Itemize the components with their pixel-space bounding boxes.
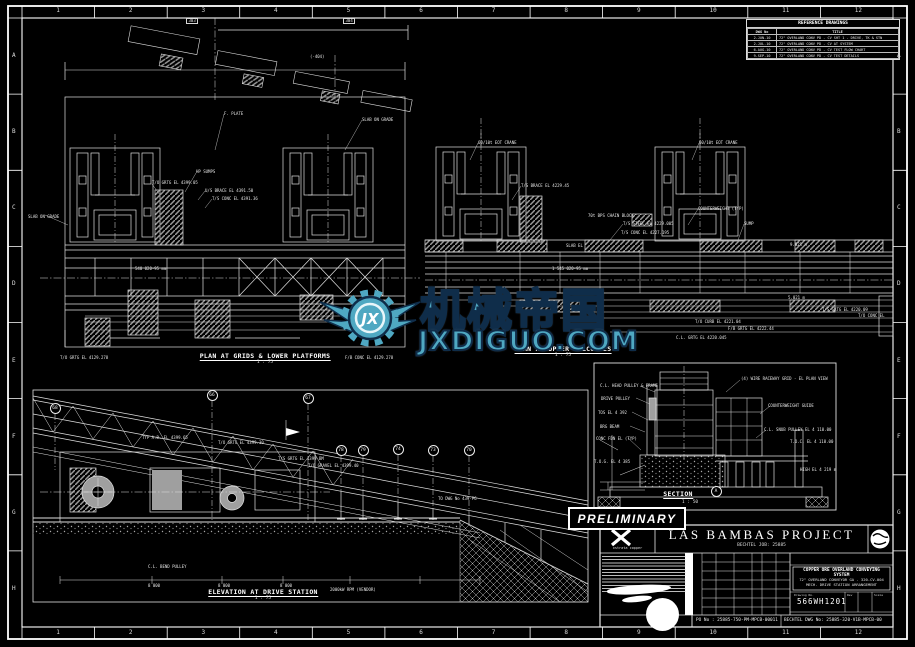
dimension-label: U/S BRACE EL 4391.50 bbox=[205, 189, 253, 193]
view-scale-section: 1 : 50 bbox=[682, 500, 698, 505]
sheet-stage: PRELIMINARY JX 机械帝国 JXDIGUO.COM REFERENC… bbox=[0, 0, 915, 647]
drawing-title-box: COPPER ORE OVERLAND CONVEYING SYSTEM 72"… bbox=[794, 568, 889, 587]
ruler-label-right: B bbox=[897, 128, 901, 135]
grid-bubble: 79 bbox=[358, 445, 369, 456]
reference-dwg-no: 9-SEP-10 bbox=[748, 53, 777, 59]
dimension-label: F/B GRTG EL 4222.44 bbox=[728, 327, 774, 331]
logo-jx-text: JX bbox=[358, 310, 380, 328]
view-title-section: SECTION bbox=[663, 490, 693, 499]
grid-bubble: A bbox=[711, 486, 722, 497]
dimension-label: T/S GRTG EL 4220.09 bbox=[822, 308, 868, 312]
ruler-label-top: 10 bbox=[710, 7, 717, 14]
dimension-label: HP SUMPS bbox=[196, 170, 215, 174]
dimension-label: T/O GRTG EL 4399.30 bbox=[218, 441, 264, 445]
drawing-number: 566WH1201 bbox=[797, 597, 847, 606]
round-seal bbox=[646, 598, 679, 631]
dimension-label: T/S BRACE EL 4229.45 bbox=[521, 184, 569, 188]
ruler-label-right: H bbox=[897, 585, 901, 592]
company-name: xstrata copper bbox=[600, 546, 655, 550]
ruler-label-right: C bbox=[897, 204, 901, 211]
ruler-label-left: G bbox=[12, 509, 16, 516]
ruler-label-top: 12 bbox=[855, 7, 862, 14]
grid-bubble: 73 bbox=[428, 445, 439, 456]
dimension-label: CONC FDN EL (TYP) bbox=[596, 437, 637, 441]
ruler-label-top: 3 bbox=[201, 7, 205, 14]
drawing-title-line3: MECH. DRIVE STATION ARRANGEMENT bbox=[794, 583, 889, 588]
ruler-label-top: 4 bbox=[274, 7, 278, 14]
ruler-label-left: H bbox=[12, 585, 16, 592]
ruler-label-bottom: 11 bbox=[782, 629, 789, 636]
dimension-label: C.L. HEAD PULLEY & FRAME bbox=[600, 384, 658, 388]
preliminary-stamp: PRELIMINARY bbox=[568, 507, 686, 530]
dimension-label: T/O GRTG EL 4399.05 bbox=[152, 181, 198, 185]
watermark: JX 机械帝国 JXDIGUO.COM bbox=[318, 280, 638, 366]
ruler-label-bottom: 5 bbox=[347, 629, 351, 636]
view-scale-plan-lower: 1 : 75 bbox=[257, 360, 273, 365]
dimension-label: C.L. SNUB PULLEY EL 4 110.00 bbox=[764, 428, 831, 432]
dimension-label: COUNTERWEIGHT (TYP) bbox=[698, 207, 744, 211]
watermark-url-text: JXDIGUO.COM bbox=[418, 326, 639, 357]
dimension-label: 8 000 bbox=[218, 584, 230, 588]
winged-gear-logo: JX bbox=[318, 280, 422, 360]
ruler-label-right: A bbox=[897, 52, 901, 59]
ruler-label-left: A bbox=[12, 52, 16, 59]
dimension-label: SLAB ON GRADE bbox=[28, 215, 59, 219]
scale-label: Scale bbox=[874, 593, 883, 597]
ruler-label-bottom: 12 bbox=[855, 629, 862, 636]
dimension-label: 9.021 m bbox=[790, 243, 807, 247]
ruler-label-top: 11 bbox=[782, 7, 789, 14]
ruler-label-right: D bbox=[897, 280, 901, 287]
dimension-label: 5.021 m bbox=[788, 296, 805, 300]
grid-bubble: 70 bbox=[464, 445, 475, 456]
dimension-label: HIGH EL 4 219 m bbox=[800, 468, 836, 472]
reference-table-row: 9-SEP-1072" OVERLAND CONV PD - CV TEST D… bbox=[748, 53, 899, 59]
dimension-label: T/O GRTG EL 4129.278 bbox=[60, 356, 108, 360]
dimension-label: F. PLATE bbox=[224, 112, 243, 116]
dimension-label: 70t BPS CHAIN BLOCK bbox=[588, 214, 634, 218]
ruler-label-right: F bbox=[897, 433, 901, 440]
grid-bubble: 68 bbox=[50, 403, 61, 414]
dimension-label: 2000kW RPM (VENDOR) bbox=[330, 588, 376, 592]
ruler-label-right: G bbox=[897, 509, 901, 516]
dimension-label: 304 bbox=[343, 18, 355, 24]
dimension-label: C.L. BEND PULLEY bbox=[148, 565, 187, 569]
view-scale-elevation: 1 : 75 bbox=[255, 596, 271, 601]
dimension-label: TOS EL 4 392 bbox=[598, 411, 627, 415]
dimension-label: (-404) bbox=[310, 55, 324, 59]
dimension-label: T/S CONC EL 4391.36 bbox=[212, 197, 258, 201]
grid-bubble: 74 bbox=[393, 444, 404, 455]
dimension-label: 540 020-95 mm bbox=[135, 267, 166, 271]
ruler-label-top: 6 bbox=[419, 7, 423, 14]
dimension-label: COUNTERWEIGHT GUIDE bbox=[768, 404, 814, 408]
ruler-label-bottom: 10 bbox=[710, 629, 717, 636]
bechtel-dwg-number: BECHTEL DWG No: 25885-320-V1B-MPCB-00 bbox=[784, 618, 882, 623]
dimension-label: (4) WIRE RACEWAY GRID - EL PLAN VIEW bbox=[741, 377, 828, 381]
ruler-label-left: E bbox=[12, 357, 16, 364]
dimension-label: T.O.G. EL 4 385 bbox=[594, 460, 630, 464]
rev-label: Rev bbox=[847, 593, 852, 597]
ruler-label-bottom: 2 bbox=[129, 629, 133, 636]
dimension-label: T/O CURB EL 4221.04 bbox=[695, 320, 741, 324]
ruler-label-left: F bbox=[12, 433, 16, 440]
grid-bubble: 66 bbox=[207, 390, 218, 401]
dimension-label: SLAB ON GRADE bbox=[362, 118, 393, 122]
dimension-label: 8 000 bbox=[148, 584, 160, 588]
dimension-label: SUMP bbox=[744, 222, 754, 226]
ruler-label-top: 1 bbox=[56, 7, 60, 14]
dimension-label: C.L. GRTG EL 4220.045 bbox=[676, 336, 727, 340]
ruler-label-top: 5 bbox=[347, 7, 351, 14]
reference-table-title: REFERENCE DRAWINGS bbox=[747, 20, 899, 28]
ruler-label-right: E bbox=[897, 357, 901, 364]
project-subtitle: BECHTEL JOB: 25885 bbox=[655, 543, 868, 548]
ruler-label-left: C bbox=[12, 204, 16, 211]
ruler-label-left: D bbox=[12, 280, 16, 287]
ruler-label-top: 2 bbox=[129, 7, 133, 14]
dimension-label: T/O CONC EL bbox=[858, 314, 885, 318]
dimension-label: SLAB EL bbox=[566, 244, 583, 248]
dimension-label: 8 000 bbox=[280, 584, 292, 588]
ruler-label-bottom: 1 bbox=[56, 629, 60, 636]
dimension-label: 60/10t EOT CRANE bbox=[699, 141, 738, 145]
dimension-label: T.O.C. EL 4 110.00 bbox=[790, 440, 833, 444]
dimension-label: 303 bbox=[186, 18, 198, 24]
ruler-label-top: 8 bbox=[564, 7, 568, 14]
ruler-label-bottom: 9 bbox=[637, 629, 641, 636]
ruler-label-bottom: 3 bbox=[201, 629, 205, 636]
grid-bubble: 67 bbox=[303, 393, 314, 404]
dimension-label: TYP A.B. EL 4399.65 bbox=[142, 436, 188, 440]
dimension-label: DRIVE PULLEY bbox=[601, 397, 630, 401]
ruler-label-top: 9 bbox=[637, 7, 641, 14]
ruler-label-left: B bbox=[12, 128, 16, 135]
dimension-label: BRG BEAM bbox=[600, 425, 619, 429]
reference-drawings-table: REFERENCE DRAWINGS DWG NoTITLE2-JUN-1072… bbox=[746, 19, 900, 60]
dimension-label: T/S GRTG EL 4399 BM bbox=[278, 457, 324, 461]
ruler-label-bottom: 8 bbox=[564, 629, 568, 636]
ruler-label-bottom: 4 bbox=[274, 629, 278, 636]
ruler-label-bottom: 7 bbox=[492, 629, 496, 636]
dimension-label: T/O GRAVEL EL 4399.40 bbox=[308, 464, 359, 468]
dimension-label: TO DWG No 439-PG bbox=[438, 497, 477, 501]
po-number: PO No : 25885-750-PM-MPCB-00011 bbox=[696, 618, 778, 623]
dimension-label: 1 545 020-95 mm bbox=[552, 267, 588, 271]
dimension-label: T/S STEEL EL 4229.005 bbox=[623, 222, 674, 226]
dimension-label: T/S CONC EL 4227.195 bbox=[621, 231, 669, 235]
cad-drawing-sheet: { "sheet": { "background": "#000000", "l… bbox=[0, 0, 915, 647]
dimension-label: 60/10t EOT CRANE bbox=[478, 141, 517, 145]
ruler-label-top: 7 bbox=[492, 7, 496, 14]
project-title: LAS BAMBAS PROJECT bbox=[655, 527, 868, 543]
grid-bubble: 78 bbox=[336, 445, 347, 456]
ruler-label-bottom: 6 bbox=[419, 629, 423, 636]
reference-dwg-title: 72" OVERLAND CONV PD - CV TEST DETAILS bbox=[777, 53, 899, 59]
